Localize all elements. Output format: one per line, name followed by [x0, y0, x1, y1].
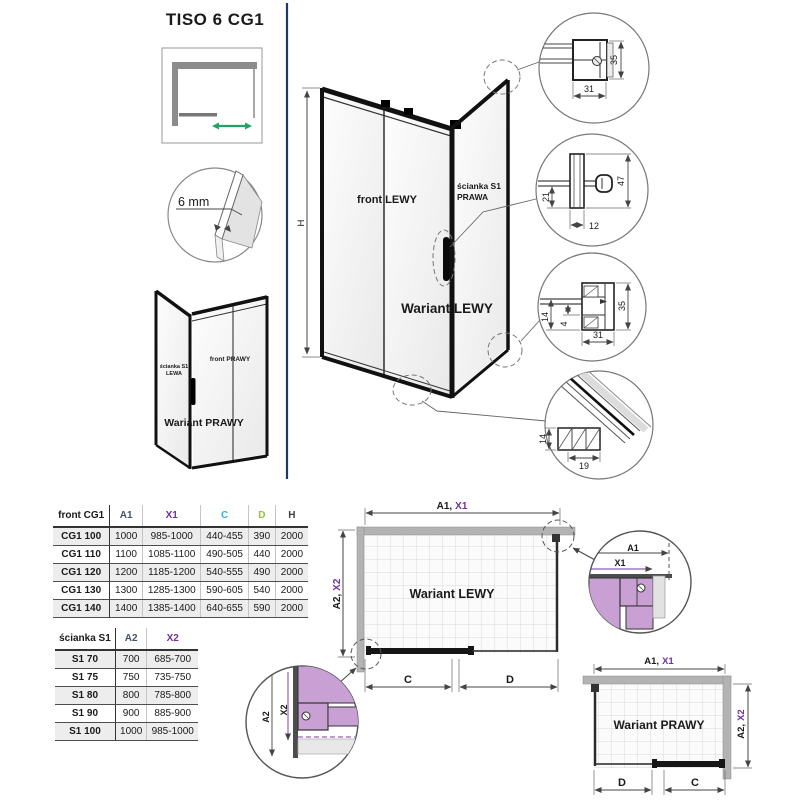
cell: 1100 [110, 546, 143, 564]
table-row: CG1 140 1400 1385-1400 640-655 590 2000 [53, 600, 308, 618]
dim-x1-part: X1 [662, 656, 674, 667]
cell: 2000 [275, 564, 308, 582]
cell: 540 [248, 582, 275, 600]
dim-x1-part: X1 [455, 501, 468, 512]
corner-detail-a2x2: A2 X2 [246, 666, 360, 778]
table-row: CG1 100 1000 985-1000 440-455 390 2000 [53, 527, 308, 546]
small-wall-label-2: LEWA [166, 371, 182, 377]
table-row: CG1 130 1300 1285-1300 590-605 540 2000 [53, 582, 308, 600]
plan-right-dim-a2x2: A2,X2 [736, 709, 747, 738]
cell: 1200 [110, 564, 143, 582]
main-variant-label: Wariant LEWY [401, 301, 493, 316]
roller-bracket [404, 108, 413, 115]
table-title: ścianka S1 [55, 628, 115, 650]
cell: 490 [248, 564, 275, 582]
main-wall-label-2: PRAWA [457, 192, 488, 202]
table-scianka-s1: ścianka S1 A2 X2 S1 70 700 685-700 S1 75… [55, 628, 198, 741]
main-wall-label-1: ścianka S1 [457, 181, 501, 191]
dim-a2-part: A2, [332, 594, 343, 610]
row-name: CG1 130 [53, 582, 110, 600]
small-wall-label-1: ścianka S1 [160, 364, 188, 370]
corner-a1-label: A1 [627, 543, 639, 553]
plan-sliding-door [652, 761, 725, 767]
cell: 2000 [275, 600, 308, 618]
cell: 735-750 [147, 669, 198, 687]
row-name: S1 100 [55, 723, 115, 741]
plan-view-wariant-prawy: A1,X1 A2,X2 D C Wariant PRAWY [583, 656, 752, 795]
cell: 390 [248, 527, 275, 546]
cell: 1385-1400 [143, 600, 201, 618]
detail-bottom-rail: 14 19 [538, 361, 653, 479]
dim-a1-part: A1, [644, 656, 659, 667]
door-handle-small [191, 378, 196, 405]
glass-thickness-label: 6 mm [178, 195, 209, 209]
col-header-h: H [275, 505, 308, 527]
row-name: CG1 100 [53, 527, 110, 546]
glass-thickness-detail: 6 mm [168, 168, 262, 262]
col-header-a1: A1 [110, 505, 143, 527]
plan-view-wariant-lewy: A1,X1 A2,X2 C D Wariant LEWY [330, 501, 595, 692]
row-name: CG1 140 [53, 600, 110, 618]
plan-left-dim-d: D [506, 674, 514, 686]
dim-14-wall: 14 [540, 312, 550, 322]
plan-left-dim-c: C [404, 674, 412, 686]
cell: 590-605 [201, 582, 248, 600]
height-label: H [296, 219, 307, 226]
plan-right-variant-label: Wariant PRAWY [614, 718, 705, 732]
row-name: S1 70 [55, 650, 115, 669]
dim-31-wall: 31 [593, 330, 603, 340]
cell: 685-700 [147, 650, 198, 669]
row-name: S1 75 [55, 669, 115, 687]
cell: 1300 [110, 582, 143, 600]
dim-4: 4 [559, 321, 569, 326]
table-front-cg1: front CG1 A1 X1 C D H CG1 100 1000 985-1… [53, 505, 308, 618]
table-row: CG1 120 1200 1185-1200 540-555 490 2000 [53, 564, 308, 582]
table-row: S1 80 800 785-800 [55, 687, 198, 705]
dim-31-top: 31 [584, 84, 594, 94]
cell: 1000 [110, 527, 143, 546]
dim-47: 47 [616, 176, 626, 186]
table-row: S1 100 1000 985-1000 [55, 723, 198, 741]
dim-35-wall: 35 [617, 301, 627, 311]
plan-left-variant-label: Wariant LEWY [410, 587, 496, 601]
plan-sliding-door [366, 648, 473, 654]
cell: 1000 [115, 723, 147, 741]
corner-x1-label: X1 [614, 558, 625, 568]
table-row: S1 75 750 735-750 [55, 669, 198, 687]
dim-21: 21 [541, 192, 551, 202]
cell: 490-505 [201, 546, 248, 564]
cell: 2000 [275, 546, 308, 564]
dim-a2-part: A2, [736, 724, 747, 739]
plan-left-dim-a1x1: A1,X1 [437, 501, 468, 512]
row-name: S1 80 [55, 687, 115, 705]
row-name: S1 90 [55, 705, 115, 723]
detail-top-profile: 31 35 [539, 13, 649, 123]
cell: 785-800 [147, 687, 198, 705]
cell: 985-1000 [147, 723, 198, 741]
col-header-d: D [248, 505, 275, 527]
small-variant-label: Wariant PRAWY [164, 417, 244, 429]
cell: 440-455 [201, 527, 248, 546]
table-title: front CG1 [53, 505, 110, 527]
plan-left-dim-a2x2: A2,X2 [332, 578, 343, 609]
corner-detail-a1x1: A1 X1 [589, 531, 691, 634]
cell: 885-900 [147, 705, 198, 723]
detail-knob-profile: 21 12 47 [536, 134, 648, 246]
dim-19: 19 [579, 461, 589, 471]
dim-a1-part: A1, [437, 501, 453, 512]
table-row: front CG1 A1 X1 C D H [53, 505, 308, 527]
plan-right-dim-a1x1: A1,X1 [644, 656, 674, 667]
row-name: CG1 120 [53, 564, 110, 582]
dim-x2-part: X2 [736, 709, 747, 721]
dim-14-rail: 14 [538, 434, 548, 444]
cell: 1285-1300 [143, 582, 201, 600]
dim-12: 12 [589, 221, 599, 231]
cell: 900 [115, 705, 147, 723]
small-3d-view-wariant-prawy: ścianka S1 LEWA front PRAWY Wariant PRAW… [156, 291, 267, 469]
detail-wall-bottom-profile: 14 4 31 35 [538, 253, 646, 361]
main-front-label: front LEWY [357, 194, 418, 206]
cell: 800 [115, 687, 147, 705]
roller-bracket [381, 100, 390, 107]
door-handle-main [443, 237, 450, 281]
plan-wall-top [583, 676, 731, 684]
cell: 590 [248, 600, 275, 618]
corner-a2-label: A2 [261, 711, 271, 723]
cell: 2000 [275, 527, 308, 546]
dim-x2-part: X2 [332, 578, 343, 591]
table-row: S1 70 700 685-700 [55, 650, 198, 669]
schematic-plan-icon [162, 48, 262, 143]
cell: 1185-1200 [143, 564, 201, 582]
main-3d-view-wariant-lewy: H front LEWY ścianka S1 PRAWA Wariant LE… [296, 60, 546, 421]
plan-right-dim-d: D [618, 777, 626, 789]
cell: 440 [248, 546, 275, 564]
col-header-c: C [201, 505, 248, 527]
cell: 640-655 [201, 600, 248, 618]
row-name: CG1 110 [53, 546, 110, 564]
table-row: S1 90 900 885-900 [55, 705, 198, 723]
table-row: CG1 110 1100 1085-1100 490-505 440 2000 [53, 546, 308, 564]
corner-x2-label: X2 [279, 704, 289, 715]
col-header-a2: A2 [115, 628, 147, 650]
dim-35-top: 35 [609, 55, 619, 65]
cell: 1400 [110, 600, 143, 618]
height-dimension: H [296, 88, 320, 357]
cell: 700 [115, 650, 147, 669]
plan-wall-left [357, 527, 364, 672]
plan-right-dim-c: C [691, 777, 699, 789]
cell: 985-1000 [143, 527, 201, 546]
cell: 540-555 [201, 564, 248, 582]
col-header-x2: X2 [147, 628, 198, 650]
cell: 750 [115, 669, 147, 687]
cell: 1085-1100 [143, 546, 201, 564]
small-front-label: front PRAWY [210, 356, 251, 363]
knob-icon [596, 175, 612, 192]
col-header-x1: X1 [143, 505, 201, 527]
table-row: ścianka S1 A2 X2 [55, 628, 198, 650]
cell: 2000 [275, 582, 308, 600]
